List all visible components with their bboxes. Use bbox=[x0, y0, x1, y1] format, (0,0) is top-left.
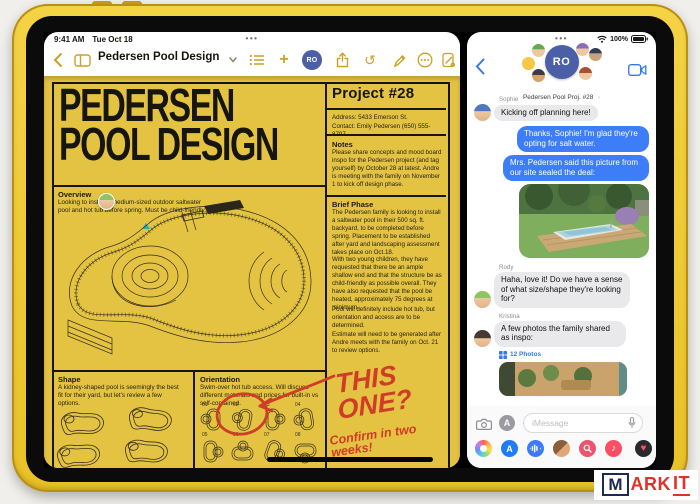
status-date: Tue Oct 18 bbox=[92, 35, 132, 44]
split-view-handle[interactable]: ••• bbox=[246, 34, 259, 43]
camera-button[interactable] bbox=[476, 417, 492, 435]
music-note-glyph: ♪ bbox=[611, 443, 616, 454]
notes-app-pane: 9:41 AM Tue Oct 18 ••• Pedersen Pool Des… bbox=[44, 32, 460, 468]
orientation-heading: Orientation bbox=[200, 375, 240, 384]
group-member-avatar bbox=[578, 66, 593, 81]
app-store-glyph: A bbox=[506, 444, 513, 454]
message-bubble: Kicking off planning here! bbox=[494, 105, 598, 122]
shape-body: A kidney-shaped pool is seemingly the be… bbox=[58, 384, 184, 407]
group-avatar-cluster[interactable]: RO bbox=[518, 44, 606, 84]
sidebar-toggle-icon[interactable] bbox=[72, 50, 92, 70]
divider bbox=[325, 82, 327, 468]
home-indicator[interactable] bbox=[267, 457, 433, 462]
thumb-number: 05 bbox=[202, 432, 208, 438]
facetime-video-button[interactable] bbox=[628, 63, 647, 81]
group-member-avatar bbox=[531, 43, 546, 58]
sender-label: Sophie bbox=[499, 96, 649, 103]
thumb-number: 02 bbox=[233, 402, 239, 408]
messages-app-pane: ••• 100% RO Ped bbox=[467, 32, 656, 468]
orientation-body: Swim-over hot tub access. Will discuss d… bbox=[200, 384, 320, 407]
group-logo-avatar: RO bbox=[545, 45, 579, 79]
heart-glyph: ♥ bbox=[641, 443, 647, 454]
music-app-icon[interactable]: ♪ bbox=[605, 440, 622, 457]
divider bbox=[327, 195, 446, 197]
memoji-stickers-app-icon[interactable] bbox=[553, 440, 570, 457]
compose-note-button[interactable] bbox=[440, 50, 458, 70]
split-view-handle[interactable]: ••• bbox=[555, 34, 568, 43]
markup-pen-button[interactable] bbox=[390, 50, 408, 70]
status-bar-right: 100% bbox=[597, 35, 648, 43]
share-button[interactable] bbox=[334, 50, 350, 70]
thumb-number: 04 bbox=[295, 402, 301, 408]
wifi-icon bbox=[597, 35, 607, 43]
avatar-kristina bbox=[474, 330, 491, 347]
photo-collection-badge[interactable]: 12 Photos bbox=[499, 351, 649, 359]
message-bubble-sent: Mrs. Pedersen said this picture from our… bbox=[503, 155, 649, 181]
status-bar-left: 9:41 AM Tue Oct 18 bbox=[54, 35, 133, 44]
app-store-app-icon[interactable]: A bbox=[501, 440, 518, 457]
messages-back-button[interactable] bbox=[475, 58, 485, 80]
shape-heading: Shape bbox=[58, 375, 81, 384]
message-input-dock: A A ♪ ♥ bbox=[467, 406, 656, 468]
brief-p3: Pool will definitely include hot tub, bu… bbox=[332, 306, 442, 330]
imessage-input[interactable] bbox=[530, 417, 620, 429]
pool-wireframe-diagram bbox=[54, 188, 323, 368]
address-line: Address: 5433 Emerson St. bbox=[332, 114, 444, 122]
divider bbox=[327, 108, 446, 110]
thumb-number: 08 bbox=[295, 432, 301, 438]
group-member-avatar bbox=[531, 68, 546, 83]
battery-percent: 100% bbox=[610, 36, 628, 43]
digital-touch-app-icon[interactable]: ♥ bbox=[635, 440, 652, 457]
contact-line: Contact: Emily Pedersen (650) 555-8797 bbox=[332, 123, 444, 139]
photo-collage-attachment[interactable] bbox=[499, 362, 627, 396]
undo-button[interactable]: ↺ bbox=[362, 50, 378, 70]
project-heading: Project #28 bbox=[332, 85, 414, 102]
more-button[interactable] bbox=[416, 50, 434, 70]
pool-photo-attachment[interactable] bbox=[519, 184, 649, 258]
document-title: PEDERSEN POOL DESIGN bbox=[59, 86, 278, 165]
collab-cursor-avatar bbox=[98, 193, 115, 210]
brief-p4: Estimate will need to be generated after… bbox=[332, 331, 442, 355]
notes-heading: Notes bbox=[332, 140, 353, 149]
sender-label: Kristina bbox=[499, 313, 649, 320]
imessage-apps-button[interactable]: A bbox=[499, 415, 515, 431]
brief-p1: The Pedersen family is looking to instal… bbox=[332, 209, 442, 257]
app-store-glyph: A bbox=[504, 418, 511, 428]
avatar-sophie bbox=[474, 104, 491, 121]
add-button[interactable]: + bbox=[276, 50, 292, 70]
dictation-mic-icon[interactable] bbox=[628, 417, 636, 429]
watermark-ark: ARK bbox=[631, 474, 672, 495]
divider bbox=[52, 370, 327, 372]
checklist-button[interactable] bbox=[248, 50, 266, 70]
screen: 9:41 AM Tue Oct 18 ••• Pedersen Pool Des… bbox=[44, 32, 656, 468]
back-button[interactable] bbox=[52, 50, 64, 70]
audio-app-icon[interactable] bbox=[527, 440, 544, 457]
conversation-scroll[interactable]: Sophie Kicking off planning here! Thanks… bbox=[467, 96, 656, 406]
photo-grid-icon bbox=[499, 351, 507, 359]
battery-icon bbox=[631, 35, 648, 43]
brief-heading: Brief Phase bbox=[332, 200, 373, 209]
title-chevron-down-icon[interactable] bbox=[228, 50, 238, 70]
divider bbox=[52, 185, 327, 187]
thumb-number: 06 bbox=[233, 432, 239, 438]
orientation-thumbnails-row2 bbox=[198, 438, 322, 468]
hash-images-app-icon[interactable] bbox=[579, 440, 596, 457]
notes-body: Please share concepts and mood board ins… bbox=[332, 149, 442, 189]
brief-p2: With two young children, they have reque… bbox=[332, 256, 442, 312]
pool-shape-sketches bbox=[54, 406, 188, 468]
message-bubble: A few photos the family shared as inspo: bbox=[494, 321, 626, 347]
note-document: PEDERSEN POOL DESIGN Overview Looking to… bbox=[44, 76, 460, 468]
thumb-number: 07 bbox=[264, 432, 270, 438]
sender-label: Rody bbox=[499, 264, 649, 271]
divider bbox=[193, 370, 195, 468]
avatar-rody bbox=[474, 291, 491, 308]
orientation-thumbnails-row1 bbox=[198, 408, 322, 432]
group-member-avatar bbox=[588, 47, 603, 62]
message-bubble-sent: Thanks, Sophie! I'm glad they're opting … bbox=[517, 126, 649, 152]
thumb-number: 03 bbox=[264, 402, 270, 408]
watermark-it: IT bbox=[673, 473, 690, 496]
watermark-m: M bbox=[602, 473, 628, 496]
markit-watermark: MARKIT bbox=[594, 470, 698, 500]
status-time: 9:41 AM bbox=[54, 35, 84, 44]
collab-monogram: RO bbox=[306, 57, 317, 64]
collaborator-avatar[interactable]: RO bbox=[302, 50, 322, 70]
message-bubble: Haha, love it! Do we have a sense of wha… bbox=[494, 272, 630, 308]
group-logo-monogram: RO bbox=[553, 56, 571, 68]
ipad-device: 9:41 AM Tue Oct 18 ••• Pedersen Pool Des… bbox=[12, 4, 688, 492]
imessage-input-field[interactable] bbox=[523, 413, 643, 433]
photos-app-icon[interactable] bbox=[475, 440, 492, 457]
note-title[interactable]: Pedersen Pool Design bbox=[98, 51, 219, 63]
thumb-number: 01 bbox=[202, 402, 208, 408]
